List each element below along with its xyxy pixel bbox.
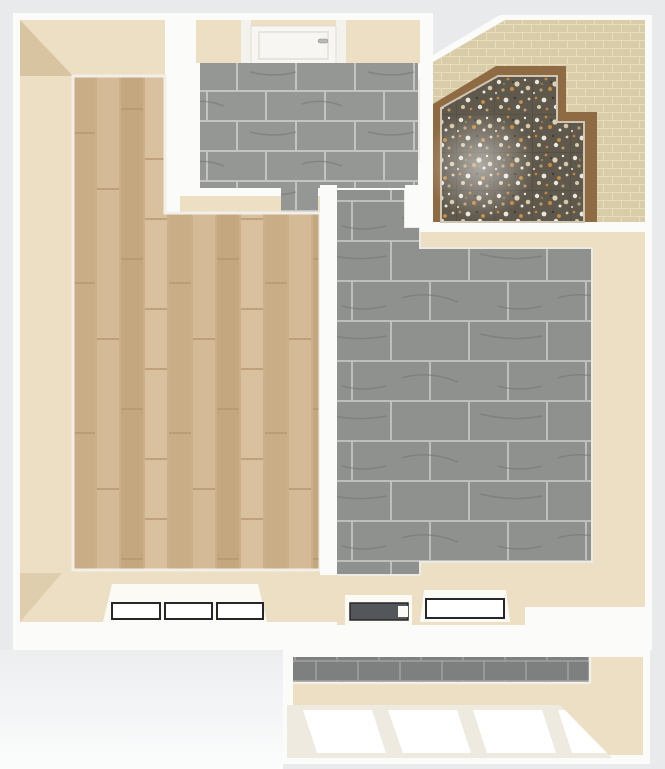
floor-plan-render — [0, 0, 665, 769]
balcony — [283, 648, 650, 764]
kitchen-window-pane — [426, 599, 504, 618]
divider-wall — [320, 185, 337, 575]
bathroom-floor-tiles — [200, 63, 418, 188]
bedroom-window-pane — [217, 603, 263, 619]
balcony-glazing-pane — [473, 710, 556, 753]
bedroom-window-pane — [112, 603, 160, 619]
bathroom-door-handle — [318, 39, 328, 43]
balcony-glazing-pane — [303, 710, 386, 753]
floor-plan-stage — [0, 0, 665, 769]
kitchen-floor-right — [420, 248, 592, 562]
bathroom-door-post-right — [336, 20, 346, 66]
room-top-right — [420, 13, 652, 232]
kitchen-notch-wall — [405, 185, 420, 227]
bathroom-door-post-left — [241, 20, 251, 66]
bedroom-window — [103, 584, 267, 622]
bedroom-window-pane — [165, 603, 212, 619]
kitchen-south-wall-band — [337, 625, 525, 650]
room-top-center — [165, 13, 433, 216]
ground-light-area — [0, 650, 283, 769]
balcony-door — [345, 595, 412, 625]
room-right — [320, 185, 652, 650]
kitchen-floor-left — [337, 190, 420, 575]
balcony-floor-tiles — [293, 657, 590, 682]
terrazzo-light-glare — [425, 110, 535, 220]
kitchen-window — [420, 590, 510, 622]
balcony-door-sill — [398, 606, 408, 617]
southeast-wall-step — [525, 607, 652, 650]
